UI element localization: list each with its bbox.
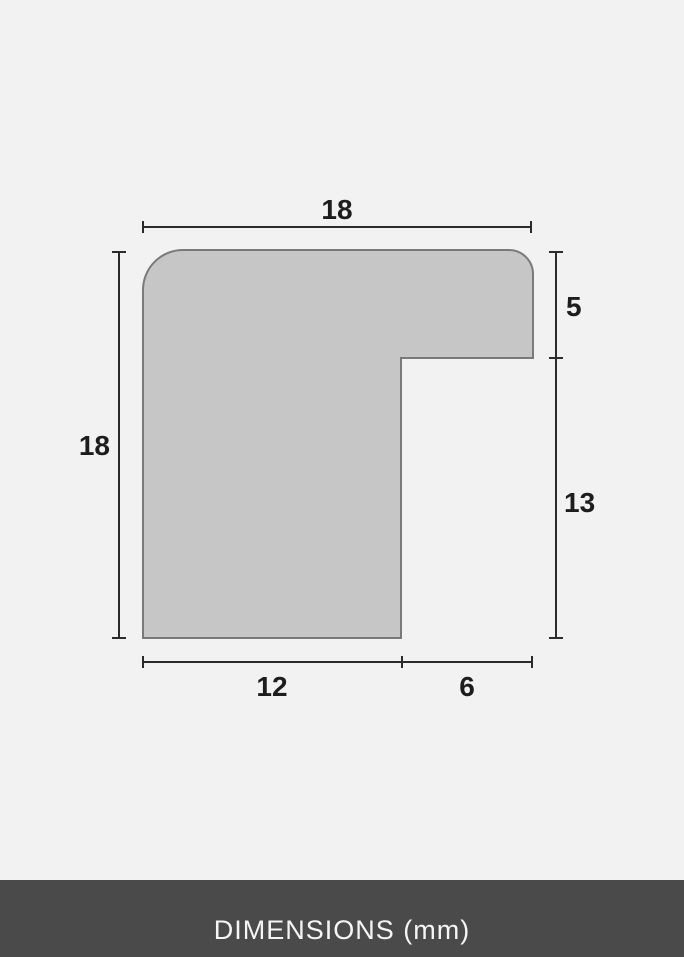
- dimension-bottom-split: 12 6: [143, 656, 532, 702]
- dimension-left-height-label: 18: [79, 430, 110, 461]
- profile-shape: [143, 250, 533, 638]
- dimension-right-split: 5 13: [549, 252, 595, 638]
- dimension-bottom-right-label: 6: [459, 671, 475, 702]
- dimension-right-upper-label: 5: [566, 291, 582, 322]
- page: 18 18 5 13 12 6 DIMENSIONS: [0, 0, 684, 957]
- frame-profile-diagram: 18 18 5 13 12 6: [0, 0, 684, 880]
- dimension-right-lower-label: 13: [564, 487, 595, 518]
- dimension-top-width: 18: [143, 194, 531, 233]
- footer-caption: DIMENSIONS (mm): [214, 917, 470, 944]
- dimension-bottom-left-label: 12: [256, 671, 287, 702]
- dimension-top-width-label: 18: [321, 194, 352, 225]
- footer-bar: DIMENSIONS (mm): [0, 880, 684, 957]
- dimension-left-height: 18: [79, 252, 126, 638]
